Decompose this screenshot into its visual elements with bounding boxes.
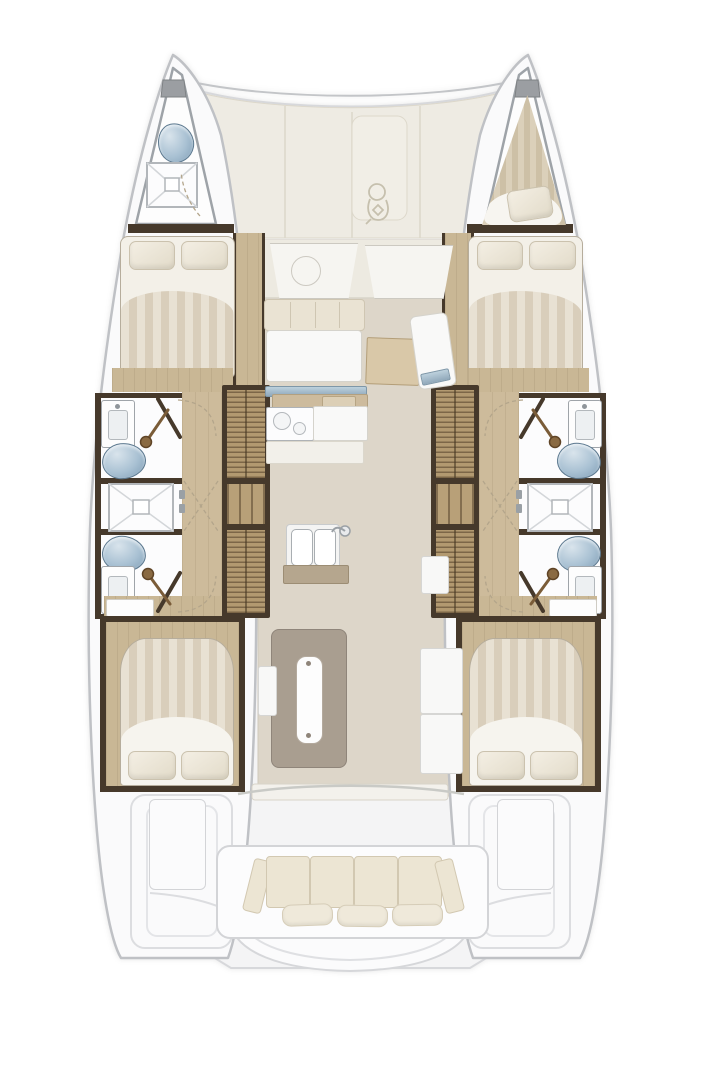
- starboard-anchor-locker: [515, 80, 540, 97]
- forward-cockpit-seat: [266, 243, 362, 299]
- cockpit-pillow: [392, 904, 443, 927]
- bench-back-cushion: [310, 856, 354, 908]
- starboard-aft-cabin-bed: [469, 638, 583, 786]
- bench-back-cushion: [266, 856, 310, 908]
- faucet-icon: [115, 404, 120, 409]
- cockpit-pillow: [282, 903, 334, 927]
- partition-wall: [519, 478, 606, 484]
- windlass-icon: [366, 184, 388, 224]
- saloon-sofa-backrest: [264, 299, 365, 331]
- cushion-seam: [315, 302, 316, 328]
- cushion-seam: [339, 302, 340, 328]
- partition-wall: [519, 529, 606, 535]
- port-aft-cabin-bed: [120, 638, 234, 786]
- bathroom-sink: [101, 400, 135, 448]
- starboard-forward-bulkhead: [467, 224, 573, 233]
- table-ring: [291, 256, 321, 286]
- saloon-door-sill: [252, 784, 448, 800]
- cockpit-pillow: [337, 905, 388, 928]
- galley-worktop: [313, 406, 368, 441]
- duvet: [469, 291, 582, 377]
- galley-cabinet: [421, 556, 449, 594]
- sink-bowl: [291, 529, 313, 566]
- cushion-seam: [290, 302, 291, 328]
- cockpit-bench: [216, 845, 489, 939]
- bow-shower-tray: [147, 163, 197, 207]
- starboard-forward-cabin-bed: [468, 236, 583, 378]
- galley-cooktop: [266, 407, 314, 441]
- galley-cabinet: [420, 714, 463, 774]
- foredeck-edge-line: [183, 80, 518, 96]
- pillow: [181, 751, 229, 780]
- stair-bar: [227, 524, 265, 530]
- berth-cushion: [506, 185, 554, 223]
- cabinet-top: [106, 599, 154, 617]
- pillow: [477, 241, 523, 270]
- duvet: [121, 291, 234, 377]
- pillow: [477, 751, 525, 780]
- port-forward-bulkhead: [128, 224, 234, 233]
- port-hull-floor: [112, 368, 233, 392]
- bench-back-cushion: [354, 856, 398, 908]
- starboard-hull-corridor: [479, 390, 519, 618]
- partition-wall: [95, 529, 182, 535]
- coachroof-seams: [285, 106, 420, 238]
- galley-cabinet: [420, 648, 463, 714]
- galley-island: [271, 629, 347, 768]
- faucet-icon: [582, 404, 587, 409]
- galley-cabinet: [258, 666, 277, 716]
- pillow: [129, 241, 175, 270]
- pillow: [128, 751, 176, 780]
- starboard-hull-floor: [468, 368, 589, 392]
- sink-bowl: [314, 529, 336, 566]
- port-hull-corridor: [182, 390, 222, 618]
- burner: [273, 412, 291, 430]
- cockpit-locker: [149, 799, 206, 890]
- galley-sink-unit: [286, 524, 340, 570]
- partition-wall: [95, 478, 182, 484]
- catamaran-floorplan: [0, 0, 720, 1080]
- pillow: [181, 241, 228, 270]
- stair-bar: [436, 478, 474, 484]
- forward-cockpit-seat: [361, 245, 457, 299]
- handle-dot: [306, 733, 311, 738]
- deck-hatch: [352, 116, 407, 220]
- galley-cabinet: [266, 441, 364, 464]
- stair-bar: [436, 524, 474, 530]
- galley-counter-aft: [283, 565, 349, 584]
- stair-landing: [227, 484, 265, 524]
- sink-basin: [575, 410, 595, 440]
- port-anchor-locker: [161, 80, 186, 97]
- saloon-door-curve: [238, 786, 464, 794]
- bathroom-sink: [568, 400, 602, 448]
- sink-basin: [108, 410, 128, 440]
- cabinet-top: [549, 599, 597, 617]
- island-door: [296, 656, 323, 744]
- port-forward-cabin-floor: [233, 233, 265, 393]
- coachroof-panels: [191, 92, 510, 238]
- pillow: [530, 751, 578, 780]
- bow-toilet: [154, 120, 198, 167]
- handle-dot: [306, 661, 311, 666]
- pillow: [529, 241, 576, 270]
- saloon-table: [266, 330, 362, 382]
- burner: [293, 422, 306, 435]
- stair-bar: [227, 478, 265, 484]
- port-forward-cabin-bed: [120, 236, 235, 378]
- stair-landing: [436, 484, 474, 524]
- cockpit-locker: [497, 799, 554, 890]
